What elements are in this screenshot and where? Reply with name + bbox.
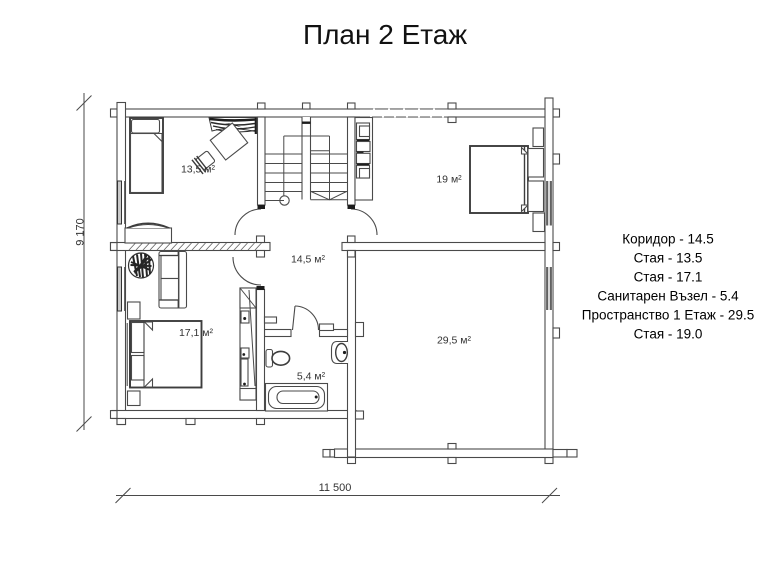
- svg-text:Пространство 1 Етаж - 29.5: Пространство 1 Етаж - 29.5: [582, 308, 754, 323]
- svg-text:9 170: 9 170: [75, 218, 87, 246]
- svg-text:Стая - 19.0: Стая - 19.0: [634, 327, 703, 342]
- svg-text:Санитарен Възел - 5.4: Санитарен Възел - 5.4: [597, 289, 739, 304]
- svg-text:План 2 Етаж: План 2 Етаж: [303, 19, 467, 50]
- svg-text:Стая - 17.1: Стая - 17.1: [634, 270, 703, 285]
- svg-text:11 500: 11 500: [319, 482, 352, 494]
- svg-text:5,4 м²: 5,4 м²: [297, 371, 326, 383]
- svg-text:19 м²: 19 м²: [436, 174, 462, 186]
- svg-text:Коридор - 14.5: Коридор - 14.5: [622, 232, 714, 247]
- svg-text:17,1 м²: 17,1 м²: [179, 327, 214, 339]
- svg-text:29,5 м²: 29,5 м²: [437, 335, 472, 347]
- svg-text:Стая - 13.5: Стая - 13.5: [634, 251, 703, 266]
- svg-text:13,5 м²: 13,5 м²: [181, 164, 216, 176]
- svg-text:14,5 м²: 14,5 м²: [291, 254, 326, 266]
